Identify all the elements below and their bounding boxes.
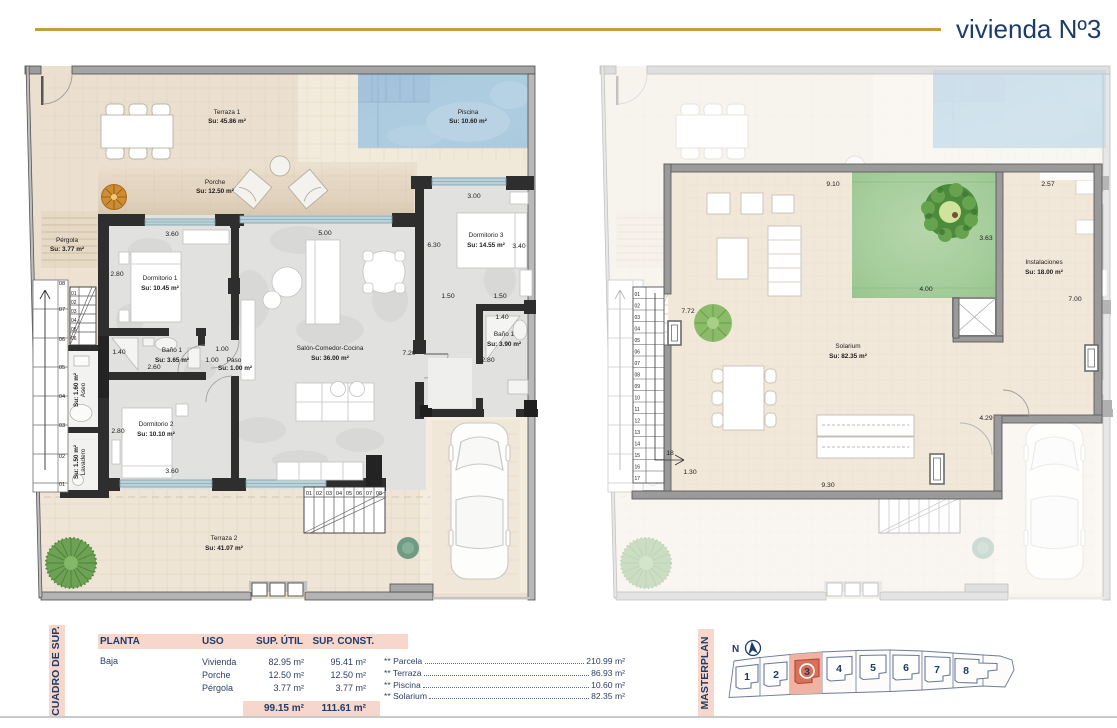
svg-text:6: 6	[903, 662, 909, 674]
svg-text:12: 12	[635, 419, 641, 425]
svg-text:Su: 1.60 m²: Su: 1.60 m²	[73, 373, 80, 407]
svg-text:Instalaciones: Instalaciones	[1025, 259, 1062, 266]
svg-text:2: 2	[773, 669, 779, 681]
svg-text:1.40: 1.40	[112, 349, 125, 356]
svg-text:9.10: 9.10	[826, 181, 839, 188]
svg-text:02: 02	[635, 304, 641, 310]
svg-text:08: 08	[376, 491, 382, 497]
svg-text:2.57: 2.57	[1041, 181, 1054, 188]
svg-text:7.72: 7.72	[681, 308, 694, 315]
svg-text:3.60: 3.60	[165, 231, 178, 238]
svg-text:Su: 12.50 m²: Su: 12.50 m²	[196, 188, 234, 195]
svg-text:02: 02	[71, 300, 77, 306]
svg-text:Su: 41.07 m²: Su: 41.07 m²	[205, 545, 243, 552]
svg-text:5: 5	[870, 662, 876, 674]
svg-text:Su: 18.00 m²: Su: 18.00 m²	[1025, 269, 1063, 276]
svg-text:01: 01	[71, 291, 77, 297]
svg-text:01: 01	[59, 482, 65, 488]
svg-text:Terraza 2: Terraza 2	[211, 535, 238, 542]
svg-text:1.30: 1.30	[683, 469, 696, 476]
svg-text:4.29: 4.29	[979, 415, 992, 422]
svg-text:1.40: 1.40	[495, 314, 508, 321]
svg-text:03: 03	[326, 491, 332, 497]
svg-text:16: 16	[635, 465, 641, 471]
svg-text:06: 06	[635, 350, 641, 356]
svg-text:Su: 10.60 m²: Su: 10.60 m²	[449, 118, 487, 125]
svg-text:7.20: 7.20	[402, 350, 415, 357]
svg-text:02: 02	[316, 491, 322, 497]
svg-text:11: 11	[635, 407, 640, 413]
svg-text:Paso: Paso	[227, 357, 242, 364]
svg-text:Su: 36.00 m²: Su: 36.00 m²	[311, 355, 349, 362]
svg-text:10: 10	[635, 396, 641, 402]
svg-text:Baño 1: Baño 1	[494, 331, 515, 338]
svg-text:Piscina: Piscina	[458, 109, 479, 116]
svg-text:Su: 82.35 m²: Su: 82.35 m²	[829, 353, 867, 360]
svg-text:3.00: 3.00	[467, 193, 480, 200]
svg-text:01: 01	[306, 491, 312, 497]
svg-text:03: 03	[59, 423, 65, 429]
svg-text:07: 07	[59, 307, 65, 313]
svg-text:9.30: 9.30	[821, 482, 834, 489]
svg-text:1: 1	[744, 671, 750, 683]
svg-text:6.30: 6.30	[427, 242, 440, 249]
svg-text:08: 08	[59, 281, 65, 287]
svg-text:07: 07	[366, 491, 372, 497]
svg-text:N: N	[732, 644, 739, 655]
svg-text:7.00: 7.00	[1068, 296, 1081, 303]
svg-text:01: 01	[635, 292, 641, 298]
svg-text:05: 05	[71, 327, 77, 333]
svg-text:Pérgola: Pérgola	[56, 237, 78, 244]
svg-text:3.40: 3.40	[512, 243, 525, 250]
svg-text:3.60: 3.60	[165, 468, 178, 475]
svg-text:07: 07	[635, 361, 641, 367]
svg-text:05: 05	[59, 365, 65, 371]
svg-text:05: 05	[635, 338, 641, 344]
svg-text:13: 13	[635, 430, 641, 436]
svg-text:1.50: 1.50	[493, 293, 506, 300]
svg-text:03: 03	[71, 309, 77, 315]
svg-text:14: 14	[635, 442, 641, 448]
svg-text:Su: 45.86 m²: Su: 45.86 m²	[208, 118, 246, 125]
svg-text:4.00: 4.00	[919, 286, 932, 293]
svg-text:09: 09	[635, 384, 641, 390]
svg-text:03: 03	[635, 315, 641, 321]
svg-text:Lavadero: Lavadero	[80, 448, 87, 475]
svg-text:5.00: 5.00	[318, 230, 331, 237]
svg-text:Aseo: Aseo	[80, 382, 87, 397]
svg-text:7: 7	[934, 664, 940, 676]
svg-text:Dormitorio 3: Dormitorio 3	[469, 232, 504, 239]
svg-text:17: 17	[635, 476, 641, 482]
svg-text:Dormitorio 1: Dormitorio 1	[143, 275, 178, 282]
svg-text:2.80: 2.80	[110, 271, 123, 278]
svg-text:Su: 10.45 m²: Su: 10.45 m²	[141, 285, 179, 292]
svg-text:Dormitorio 2: Dormitorio 2	[139, 421, 174, 428]
svg-text:02: 02	[59, 454, 65, 460]
svg-text:06: 06	[71, 336, 77, 342]
svg-text:1.50: 1.50	[441, 293, 454, 300]
svg-text:04: 04	[71, 318, 77, 324]
svg-text:18: 18	[666, 450, 674, 457]
svg-text:3.63: 3.63	[979, 235, 992, 242]
svg-text:Solarium: Solarium	[835, 343, 860, 350]
svg-text:06: 06	[59, 337, 65, 343]
svg-text:04: 04	[336, 491, 342, 497]
svg-text:15: 15	[635, 453, 641, 459]
svg-text:2.80: 2.80	[111, 428, 124, 435]
svg-text:4: 4	[836, 663, 842, 675]
svg-text:08: 08	[635, 373, 641, 379]
svg-text:Salón-Comedor-Cocina: Salón-Comedor-Cocina	[297, 345, 364, 352]
svg-text:Su: 1.00 m²: Su: 1.00 m²	[218, 365, 252, 372]
svg-text:Su: 3.90 m²: Su: 3.90 m²	[487, 341, 521, 348]
svg-text:2.60: 2.60	[147, 364, 160, 371]
svg-text:2.80: 2.80	[481, 357, 494, 364]
svg-text:Su: 10.10 m²: Su: 10.10 m²	[137, 431, 175, 438]
svg-text:3: 3	[804, 666, 810, 678]
svg-text:1.00: 1.00	[205, 357, 218, 364]
svg-text:1.00: 1.00	[215, 346, 228, 353]
svg-text:Porche: Porche	[205, 179, 226, 186]
svg-text:Su: 3.65 m²: Su: 3.65 m²	[155, 357, 189, 364]
svg-text:Su: 1.50 m²: Su: 1.50 m²	[73, 445, 80, 479]
svg-text:Terraza 1: Terraza 1	[214, 109, 241, 116]
svg-text:05: 05	[346, 491, 352, 497]
svg-text:04: 04	[59, 394, 65, 400]
svg-text:06: 06	[356, 491, 362, 497]
svg-text:Su: 3.77 m²: Su: 3.77 m²	[50, 246, 84, 253]
svg-text:Su: 14.55 m²: Su: 14.55 m²	[467, 242, 505, 249]
svg-text:04: 04	[635, 327, 641, 333]
svg-text:Baño 1: Baño 1	[162, 347, 183, 354]
svg-text:8: 8	[963, 665, 969, 677]
